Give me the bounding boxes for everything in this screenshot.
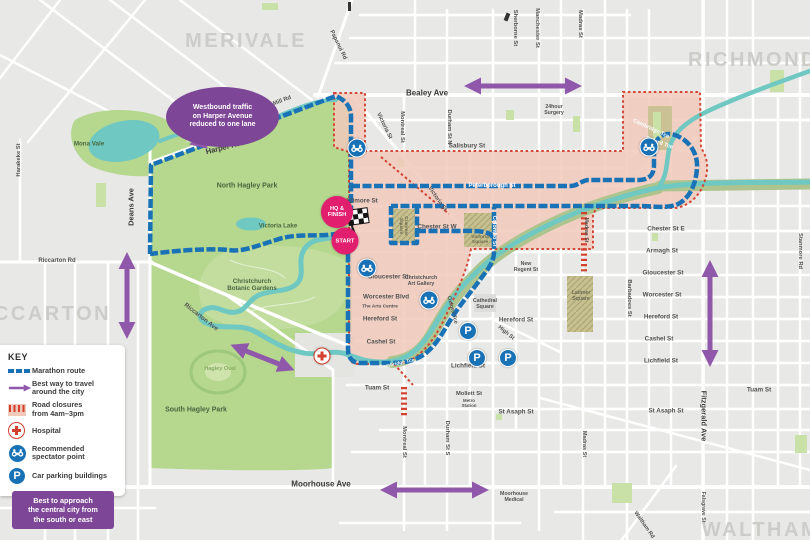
street-label: Chester St E — [647, 226, 684, 233]
street-label: South Hagley Park — [165, 407, 227, 414]
street-label: Montreal St — [401, 426, 407, 458]
legend-item: Road closures from 4am–3pm — [8, 401, 119, 418]
legend-item: Recommended spectator point — [8, 444, 119, 463]
start-badge: START — [332, 228, 359, 255]
street-label: Tuam St — [365, 385, 390, 392]
suburb-label: RICHMOND — [688, 49, 810, 71]
legend-title: KEY — [8, 352, 119, 362]
street-label: Hereford St — [363, 316, 398, 323]
street-label: Gloucester St — [368, 274, 410, 281]
legend-item-label: Best way to travel around the city — [32, 380, 94, 397]
street-label: Deans Ave — [127, 188, 136, 226]
street-label: ChristchurchBotanic Gardens — [227, 278, 277, 292]
legend-item: P Car parking buildings — [8, 467, 119, 485]
street-label: North Hagley Park — [217, 183, 278, 190]
street-label: Waltham Rd — [632, 510, 655, 539]
marathon-route-swatch — [8, 369, 30, 373]
street-label: Worcester St — [643, 292, 683, 299]
street-label: 24hourSurgery — [544, 104, 564, 116]
street-label: Barbadoes St — [626, 279, 632, 316]
street-label: Stanmore Rd — [797, 233, 803, 270]
legend-item-label: Recommended spectator point — [32, 445, 85, 462]
hq-finish-badge: HQ & FINISH — [321, 196, 353, 228]
street-label: Cashel St — [645, 336, 675, 343]
road-closure-swatch — [8, 404, 26, 416]
street-label: Mollett St — [456, 391, 482, 397]
map-legend: KEY Marathon route Best way to travel ar… — [0, 345, 125, 496]
travel-arrow-icon — [8, 383, 32, 393]
street-label: Gloucester St — [643, 270, 685, 277]
street-label: St Asaph St — [498, 409, 534, 416]
street-label: Lichfield St — [644, 358, 679, 365]
street-label: Sherborne St — [512, 10, 518, 46]
approach-note: Best to approach the central city from t… — [12, 491, 114, 529]
legend-item: Hospital — [8, 422, 119, 439]
street-label: ChristchurchArt Gallery — [405, 275, 437, 287]
suburb-label: WALTHAM — [702, 519, 810, 540]
street-label: Mona Vale — [74, 141, 105, 148]
street-label: LatimerSquare — [572, 290, 591, 302]
street-label: Hereford St — [499, 317, 534, 324]
street-label: Cashel St — [367, 339, 397, 346]
street-label: Fitzgerald Ave — [700, 391, 709, 442]
street-label: Madras St — [577, 10, 583, 38]
marathon-map: Bealey AveMoorhouse AveHarper AveDeans A… — [0, 0, 810, 540]
street-label: Peterborough St — [468, 183, 515, 189]
legend-item-label: Car parking buildings — [32, 472, 107, 480]
street-label: The Arts Centre — [362, 304, 398, 310]
street-label: MetroStation — [462, 398, 477, 408]
street-label: Colombo St — [491, 216, 497, 247]
street-label: Victoria Lake — [259, 223, 298, 230]
street-label: Bealey Ave — [406, 89, 449, 98]
street-label: Riccarton Rd — [38, 258, 76, 264]
street-label: St Asaph St — [648, 408, 684, 415]
legend-item-label: Marathon route — [32, 367, 85, 375]
street-label: Salisbury St — [449, 143, 486, 150]
street-label: Manchester St — [534, 8, 540, 48]
street-label: Hereford St — [644, 314, 679, 321]
suburb-label: MERIVALE — [185, 30, 307, 52]
street-label: Worcester Blvd — [363, 294, 409, 301]
street-label: Lichfield St — [451, 363, 486, 370]
street-label: Tuam St — [747, 387, 772, 394]
street-label: MoorhouseMedical — [500, 491, 528, 503]
parking-icon: P — [8, 467, 32, 485]
street-label: Chester St W — [417, 224, 456, 231]
legend-item: Marathon route — [8, 367, 119, 375]
legend-item-label: Hospital — [32, 427, 61, 435]
legend-item: Best way to travel around the city — [8, 380, 119, 397]
street-label: Moorhouse Ave — [291, 480, 351, 489]
hospital-icon — [8, 422, 32, 439]
street-label: VictoriaSquare — [471, 234, 489, 245]
spectator-point-icon — [8, 444, 32, 463]
street-label: NewRegent St — [514, 261, 538, 273]
legend-item-label: Road closures from 4am–3pm — [32, 401, 84, 418]
street-label: Hagley Oval — [204, 366, 236, 372]
street-label: Harakeke St — [16, 143, 22, 176]
street-label: Durham St S — [444, 421, 450, 456]
street-label: Madras St — [581, 431, 587, 457]
suburb-label: RICCARTON — [0, 303, 111, 325]
street-label: Montreal St — [399, 111, 405, 143]
street-label: Madras St — [583, 218, 589, 243]
street-label: Durham St N — [446, 109, 452, 144]
landmark-marks — [348, 2, 510, 21]
harper-traffic-callout: Westbound traffic on Harper Avenue reduc… — [166, 87, 279, 147]
street-label: Armagh St — [646, 248, 679, 255]
street-label: CranmerSquare — [398, 216, 409, 236]
